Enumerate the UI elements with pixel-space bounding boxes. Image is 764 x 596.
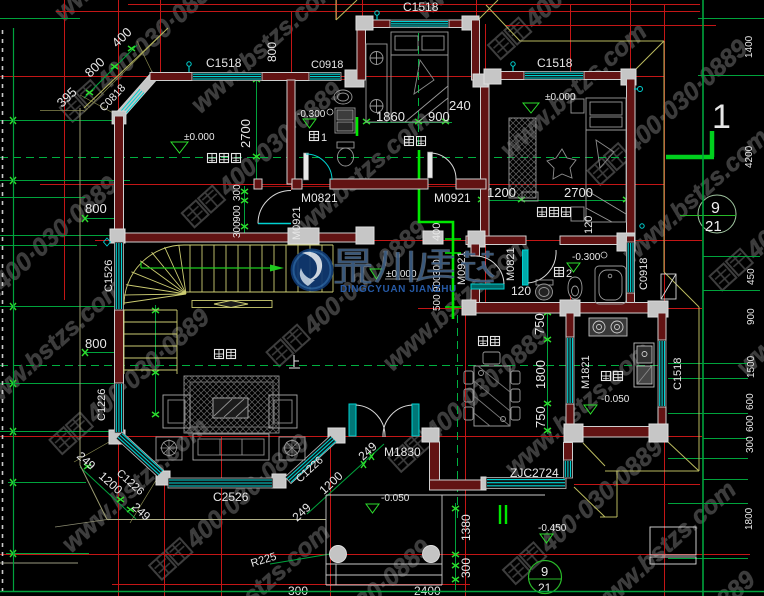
svg-text:-0.050: -0.050 [381,493,410,504]
svg-text:M0921: M0921 [434,191,471,205]
svg-text:1860: 1860 [376,109,405,124]
svg-text:4200: 4200 [744,145,755,168]
svg-text:9: 9 [541,564,548,579]
svg-text:M0921: M0921 [291,206,303,240]
svg-text:450: 450 [746,268,757,285]
svg-text:800: 800 [265,42,279,62]
svg-text:ZJC2724: ZJC2724 [510,466,559,480]
svg-text:M0821: M0821 [505,247,517,281]
svg-text:300: 300 [745,436,756,453]
svg-text:C0918: C0918 [638,258,650,290]
svg-text:1: 1 [321,132,327,144]
svg-text:800: 800 [85,201,107,216]
svg-text:C0918: C0918 [311,59,343,71]
svg-text:C1518: C1518 [537,56,573,70]
svg-text:300: 300 [288,584,308,596]
svg-text:1800: 1800 [533,360,548,389]
svg-text:DINGCYUAN JIANZHU: DINGCYUAN JIANZHU [340,284,457,295]
svg-text:C2526: C2526 [213,490,249,504]
svg-text:120: 120 [511,284,531,298]
svg-text:1400: 1400 [744,35,755,58]
svg-text:-0.450: -0.450 [538,523,567,534]
svg-text:21: 21 [705,218,722,235]
svg-text:750: 750 [532,313,547,335]
svg-text:-0.300: -0.300 [572,252,601,263]
svg-text:600: 600 [745,393,756,410]
svg-text:300: 300 [232,184,243,201]
svg-text:C1518: C1518 [403,0,439,14]
svg-text:300: 300 [232,221,243,238]
svg-text:1200: 1200 [487,185,516,200]
svg-text:800: 800 [85,336,107,351]
svg-text:400: 400 [431,223,443,241]
svg-text:±0.000: ±0.000 [545,92,576,103]
svg-text:240: 240 [449,98,471,113]
svg-text:900: 900 [428,109,450,124]
svg-text:2: 2 [566,268,572,280]
svg-text:-0.300: -0.300 [297,109,326,120]
svg-text:2400: 2400 [414,584,441,596]
svg-text:M0821: M0821 [301,191,338,205]
svg-text:600: 600 [745,415,756,432]
svg-text:C1526: C1526 [103,260,115,292]
svg-text:C1518: C1518 [672,358,684,390]
svg-text:±0.000: ±0.000 [184,132,215,143]
svg-text:1380: 1380 [459,514,473,541]
svg-text:1: 1 [712,98,731,136]
svg-text:M1821: M1821 [580,355,592,389]
svg-text:9: 9 [711,200,720,217]
svg-text:900: 900 [746,308,757,325]
svg-text:2700: 2700 [564,185,593,200]
svg-text:900: 900 [232,205,243,222]
svg-text:1500: 1500 [746,355,757,378]
svg-text:750: 750 [533,406,548,428]
svg-text:21: 21 [538,581,552,595]
svg-text:300: 300 [459,558,473,578]
svg-text:2700: 2700 [238,119,253,148]
svg-text:-0.050: -0.050 [601,394,630,405]
svg-text:1800: 1800 [744,507,755,530]
svg-text:500: 500 [432,294,443,311]
svg-text:C1518: C1518 [206,56,242,70]
svg-text:C1226: C1226 [96,389,108,421]
svg-text:120: 120 [583,216,595,234]
svg-text:M1830: M1830 [384,445,421,459]
